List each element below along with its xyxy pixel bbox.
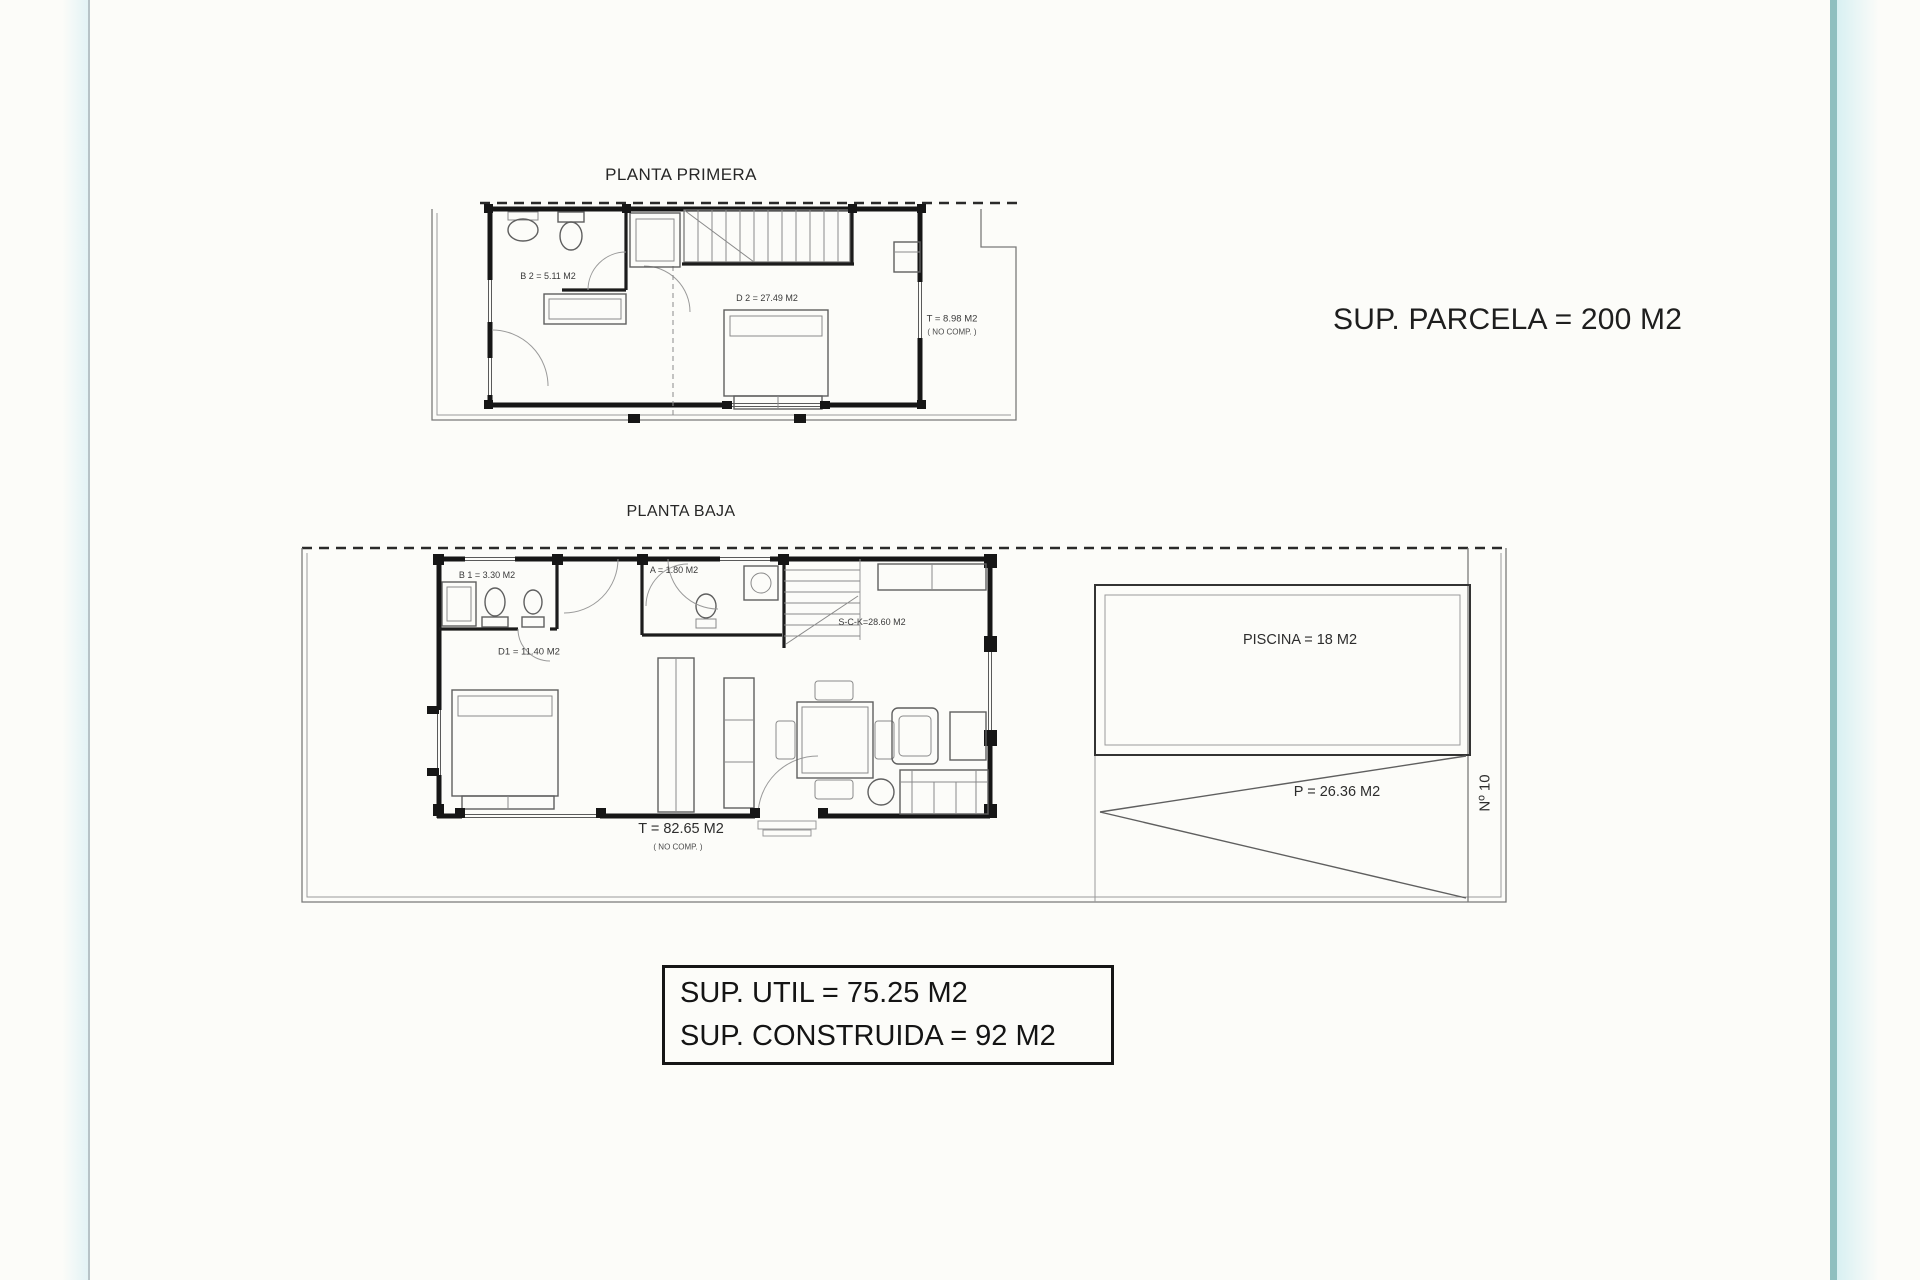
armchair-icon (892, 708, 938, 764)
left-edge-glow (62, 0, 88, 1280)
ground-wall-pillars (433, 554, 828, 818)
sofa-icon (868, 770, 988, 814)
room-label-sck: S-C-K=28.60 M2 (838, 617, 905, 627)
right-edge-bar (1830, 0, 1837, 1280)
first-floor-title: PLANTA PRIMERA (605, 165, 757, 185)
architectural-drawing-sheet: PLANTA PRIMERA (0, 0, 1920, 1280)
tv-table-icon (950, 712, 986, 760)
room-label-d2: D 2 = 27.49 M2 (736, 293, 798, 303)
wardrobe-icon (658, 658, 754, 812)
first-floor-bathroom-walls (544, 209, 626, 324)
first-floor-walls (486, 209, 924, 407)
parcel-boundary (302, 548, 1506, 902)
room-label-terrace-p0: T = 82.65 M2 (638, 821, 724, 837)
stairs-icon (682, 210, 854, 264)
room-label-b2: B 2 = 5.11 M2 (520, 271, 576, 281)
room-label-a: A = 1.80 M2 (650, 565, 698, 575)
ground-floor-title: PLANTA BAJA (626, 503, 735, 521)
first-floor-plan: B 2 = 5.11 M2 D 2 = 27.49 M2 T = 8.98 M2… (428, 190, 1020, 432)
parcel-area-note: SUP. PARCELA = 200 M2 (1333, 303, 1682, 337)
left-edge-line (88, 0, 90, 1280)
toilet-icon (558, 212, 584, 250)
ground-floor-drawing (300, 540, 1510, 908)
room-label-b1: B 1 = 3.30 M2 (459, 570, 515, 580)
sink-icon (508, 212, 538, 241)
bed-icon-ground (452, 690, 558, 809)
room-label-terrace-note-p0: ( NO COMP. ) (653, 843, 702, 852)
room-label-parking: P = 26.36 M2 (1294, 784, 1380, 800)
wall-pillars (484, 204, 926, 423)
right-edge-glow (1837, 0, 1879, 1280)
dining-table-icon (776, 681, 894, 799)
area-summary-box: SUP. UTIL = 75.25 M2 SUP. CONSTRUIDA = 9… (662, 965, 1114, 1065)
room-label-d1: D1 = 11.40 M2 (498, 647, 560, 658)
built-area-line: SUP. CONSTRUIDA = 92 M2 (680, 1015, 1096, 1058)
useful-area-line: SUP. UTIL = 75.25 M2 (680, 972, 1096, 1015)
parking-triangle (1100, 756, 1466, 898)
room-label-terrace-note-p1: ( NO COMP. ) (927, 328, 976, 337)
first-floor-drawing (428, 190, 1020, 432)
nightstand-icon (894, 242, 920, 272)
pool-outline (1095, 585, 1470, 755)
street-number-label: Nº 10 (1477, 774, 1494, 811)
shower-icon (630, 213, 680, 267)
bed-icon (724, 310, 828, 409)
ground-floor-plan: B 1 = 3.30 M2 A = 1.80 M2 D1 = 11.40 M2 … (300, 540, 1510, 908)
ground-stairs-icon (784, 559, 860, 648)
room-label-terrace-p1: T = 8.98 M2 (927, 314, 978, 325)
bidet-icon (522, 590, 544, 627)
toilet-icon-ground (482, 588, 508, 627)
room-label-pool: PISCINA = 18 M2 (1243, 632, 1357, 648)
kitchen-counter-icon (878, 564, 986, 590)
entry-steps (758, 756, 818, 836)
